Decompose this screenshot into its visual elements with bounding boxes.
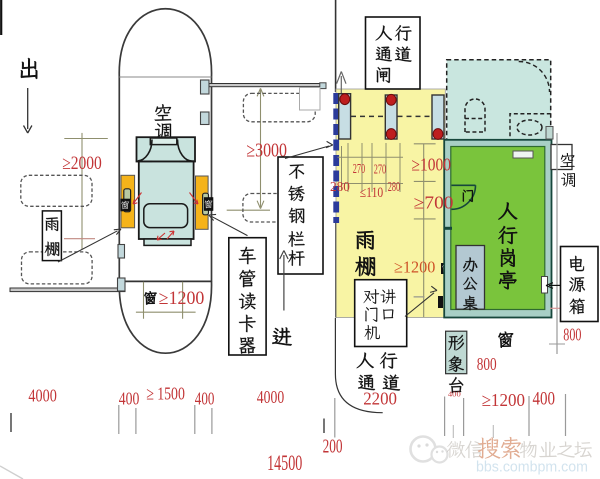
svg-text:≥ 1500: ≥ 1500 <box>146 383 185 403</box>
svg-text:≥2000: ≥2000 <box>62 153 102 174</box>
svg-text:≥1200: ≥1200 <box>159 288 205 309</box>
svg-text:≥700: ≥700 <box>414 192 454 212</box>
svg-text:270: 270 <box>353 161 366 176</box>
svg-text:400: 400 <box>533 389 556 410</box>
svg-text:200: 200 <box>323 435 343 457</box>
svg-text:2200: 2200 <box>363 388 397 408</box>
svg-text:400: 400 <box>119 389 140 409</box>
svg-text:270: 270 <box>374 162 387 177</box>
svg-text:4000: 4000 <box>257 387 284 407</box>
svg-text:280: 280 <box>388 179 401 194</box>
svg-text:4000: 4000 <box>28 386 56 406</box>
svg-text:800: 800 <box>563 325 581 345</box>
svg-text:≥1200: ≥1200 <box>394 258 435 277</box>
svg-text:400: 400 <box>195 389 215 409</box>
svg-text:14500: 14500 <box>267 450 302 475</box>
svg-text:≥1200: ≥1200 <box>482 390 525 410</box>
svg-text:bbs.combpm.com: bbs.combpm.com <box>476 460 588 476</box>
svg-text:400: 400 <box>448 390 461 399</box>
svg-text:800: 800 <box>477 354 497 374</box>
svg-text:≥1000: ≥1000 <box>412 155 452 175</box>
svg-text:≤110: ≤110 <box>360 185 383 201</box>
svg-text:280: 280 <box>330 179 350 194</box>
